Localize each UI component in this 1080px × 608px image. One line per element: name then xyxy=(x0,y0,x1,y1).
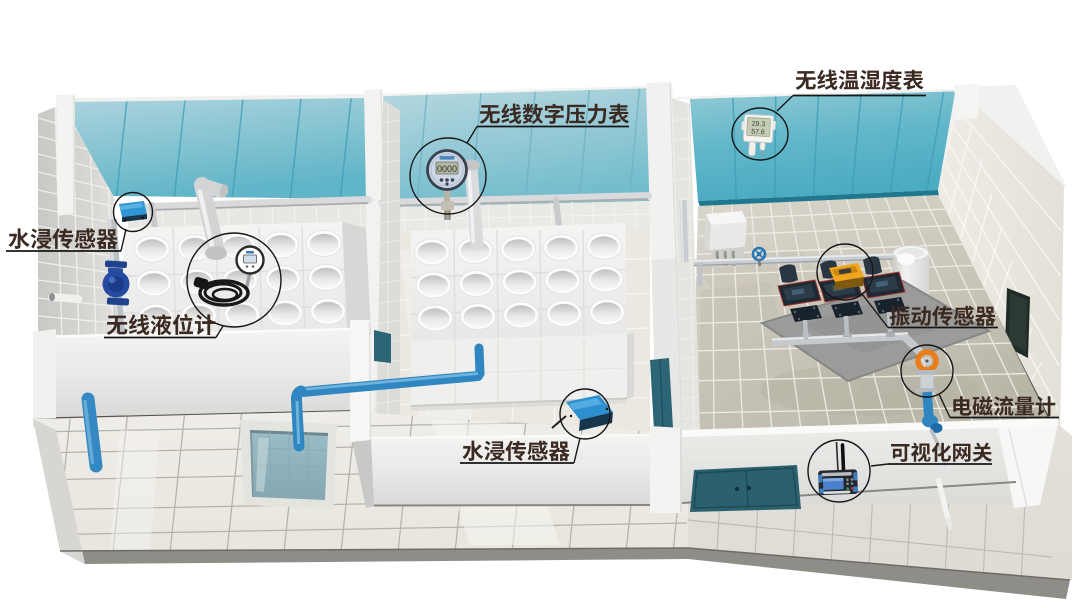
svg-text:0000: 0000 xyxy=(437,164,457,174)
svg-text:57.6: 57.6 xyxy=(751,129,765,137)
svg-text:29.3: 29.3 xyxy=(751,121,765,129)
